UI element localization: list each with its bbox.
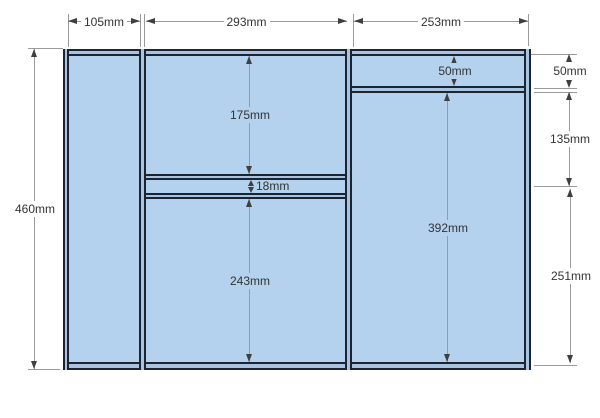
arrow-down-icon (567, 355, 573, 363)
dim-label: 50mm (436, 63, 473, 79)
arrow-down-icon (566, 80, 572, 88)
arrow-down-icon (451, 78, 457, 86)
arrow-down-icon (246, 354, 252, 362)
arrow-up-icon (246, 56, 252, 64)
dim-side-bottom-height: 251mm (565, 189, 577, 363)
dim-right-top-height: 50mm (449, 56, 461, 86)
arrow-right-icon (338, 18, 347, 24)
dim-middle-gap-height: 18mm (256, 180, 289, 193)
extension-line (534, 88, 577, 89)
dim-left-column-width: 105mm (68, 15, 140, 28)
dim-right-column-width: 253mm (354, 15, 528, 28)
dim-label: 460mm (13, 201, 57, 217)
middle-shelf-upper (146, 174, 345, 180)
arrow-down-icon (248, 187, 254, 193)
arrow-up-icon (246, 199, 252, 207)
dim-label: 135mm (548, 131, 592, 147)
arrow-down-icon (566, 178, 572, 186)
dim-middle-upper-height: 175mm (244, 56, 256, 174)
dim-side-middle-height: 135mm (564, 92, 576, 186)
extension-line (140, 14, 141, 47)
wall-left (63, 49, 69, 370)
arrow-down-icon (31, 361, 37, 369)
extension-line (28, 369, 60, 370)
divider-right-column (345, 49, 352, 370)
dim-label: 253mm (418, 15, 464, 29)
dim-side-top-height: 50mm (564, 54, 576, 88)
arrow-down-icon (246, 166, 252, 174)
extension-line (534, 365, 577, 366)
extension-line (528, 14, 529, 46)
extension-line (144, 14, 145, 47)
arrow-up-icon (31, 49, 37, 57)
arrow-right-icon (131, 18, 140, 24)
arrow-up-icon (444, 93, 450, 101)
arrow-up-icon (248, 180, 254, 186)
tank-body (63, 49, 531, 370)
divider-left-column (139, 49, 146, 370)
dim-label: 293mm (223, 15, 269, 29)
dim-middle-lower-height: 243mm (244, 199, 256, 362)
panel-drawing-canvas: 105mm 293mm 253mm 460mm 175mm 18mm 243mm (0, 0, 600, 418)
dim-right-main-height: 392mm (442, 93, 454, 362)
arrow-down-icon (444, 354, 450, 362)
dim-overall-height: 460mm (29, 49, 41, 369)
dim-label: 50mm (551, 63, 588, 79)
dim-label: 175mm (228, 107, 272, 123)
dim-label: 105mm (81, 15, 127, 29)
arrow-left-icon (68, 18, 77, 24)
arrow-right-icon (519, 18, 528, 24)
arrow-left-icon (146, 18, 155, 24)
extension-line (534, 186, 577, 187)
dim-label: 392mm (426, 220, 470, 236)
arrow-up-icon (566, 54, 572, 62)
arrow-left-icon (354, 18, 363, 24)
arrow-up-icon (567, 189, 573, 197)
dim-label: 243mm (228, 273, 272, 289)
dim-middle-column-width: 293mm (146, 15, 347, 28)
wall-bottom (63, 362, 531, 370)
arrow-up-icon (566, 92, 572, 100)
wall-right (524, 49, 531, 370)
right-column-baffle (352, 86, 524, 93)
dim-label: 251mm (549, 268, 593, 284)
wall-top (63, 49, 531, 56)
